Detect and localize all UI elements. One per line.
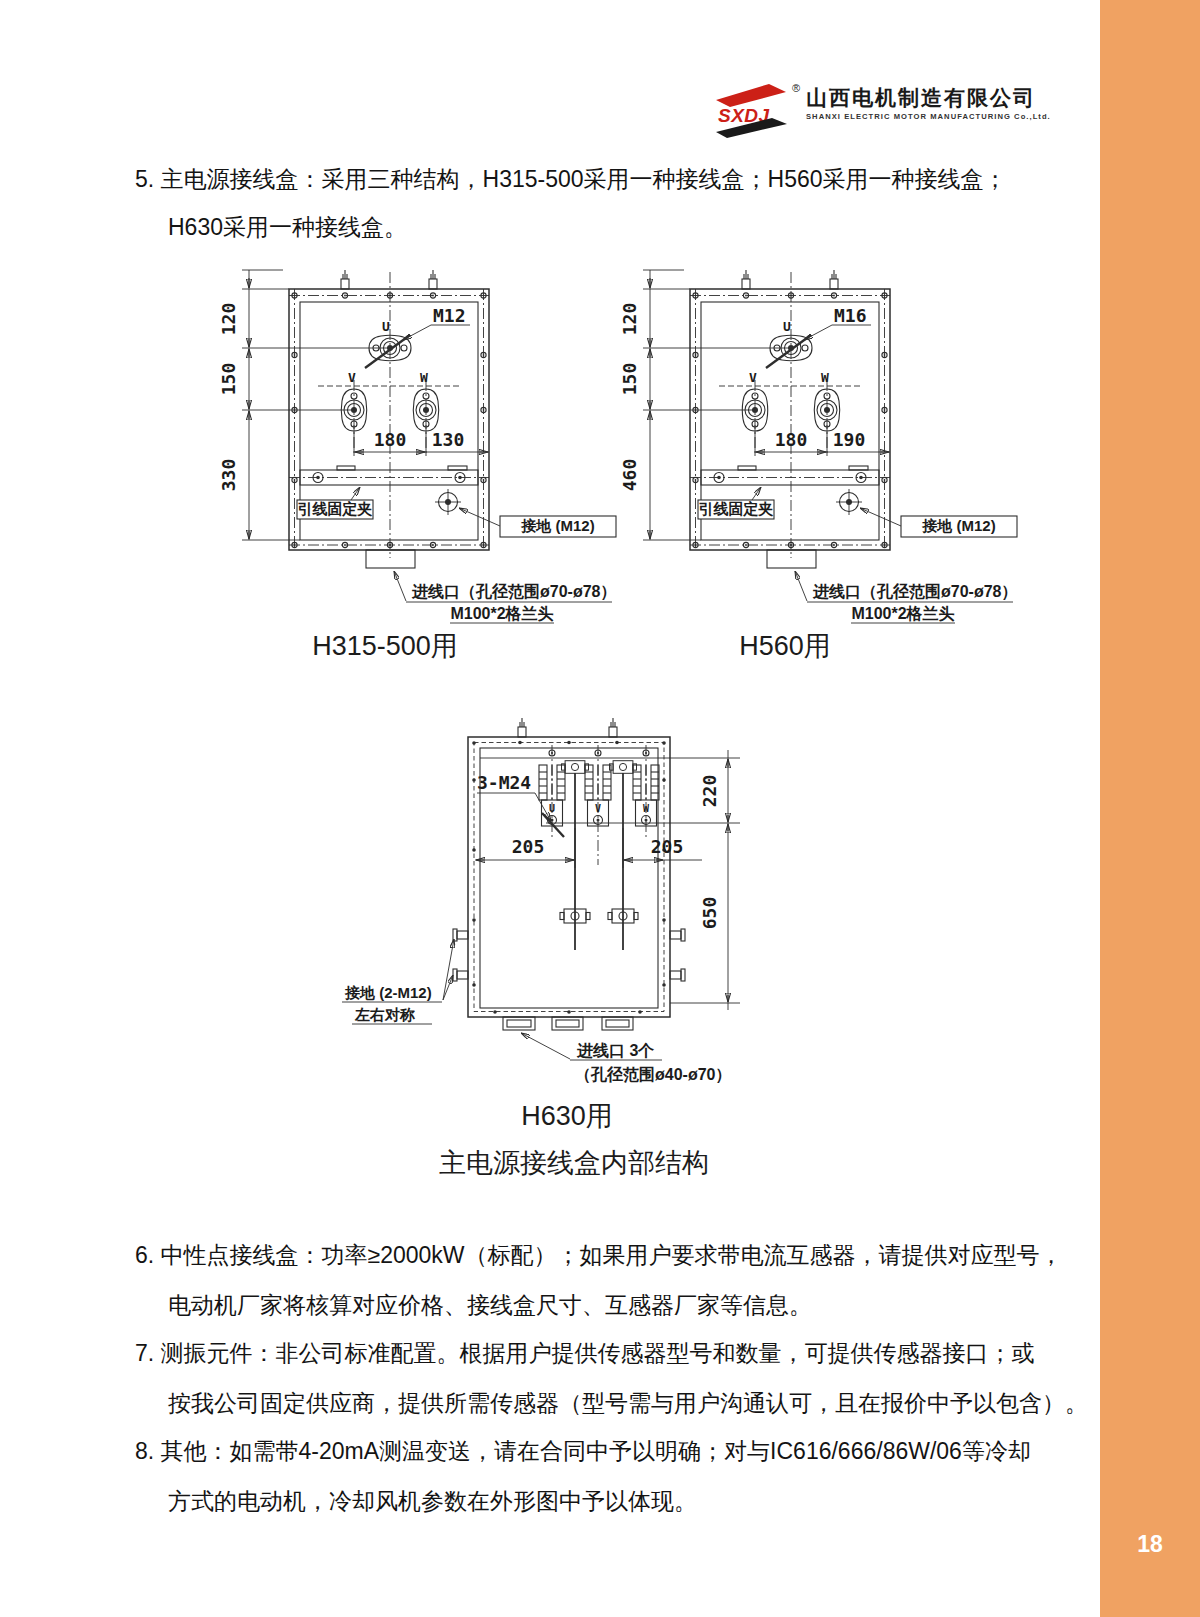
dim-180: 180 [775,429,808,450]
caption-h630: H630用 [521,1101,613,1131]
ground-label-1: 接地 (2-M12) [344,984,432,1001]
cover-screw [742,270,750,289]
item7-line1: 7. 测振元件：非公司标准配置。根据用户提供传感器型号和数量，可提供传感器接口；… [135,1342,1035,1365]
thread-label: M16 [834,305,867,326]
ground-stud [453,969,468,981]
item8-line2: 方式的电动机，冷却风机参数在外形图中予以体现。 [168,1490,697,1513]
dim-150: 150 [218,363,239,396]
item6-line2: 电动机厂家将核算对应价格、接线盒尺寸、互感器厂家等信息。 [168,1294,812,1317]
cover-screw [830,270,838,289]
item5-line1: 5. 主电源接线盒：采用三种结构，H315-500采用一种接线盒；H560采用一… [135,168,1007,191]
dim-120: 120 [619,303,640,336]
caption-h315-500: H315-500用 [312,631,458,661]
ground-stud [453,929,468,941]
dim-205-right: 205 [651,836,684,857]
dim-150: 150 [619,363,640,396]
cover-screw [429,270,437,289]
label-u: U [783,319,791,334]
document-page: 18 SXDJ ® 山西电机制造有限公司 SHANXI ELECTRIC MOT… [0,0,1200,1617]
inlet-label-2: （孔径范围ø40-ø70） [575,1066,731,1084]
item5-line2: H630采用一种接线盒。 [168,216,407,239]
rod-clamp [562,761,589,774]
ground-label-2: 左右对称 [354,1006,415,1023]
ground-label: 接地 (M12) [520,517,594,534]
diagram-h630: U V W 3-M24 205 205 [342,718,740,1178]
company-logo-icon: SXDJ [714,80,790,138]
item6-line1: 6. 中性点接线盒：功率≥2000kW（标配）；如果用户要求带电流互感器，请提供… [135,1244,1063,1267]
inlet-label-2: M100*2格兰头 [450,605,553,622]
rod-clamp [610,761,637,774]
company-name-cn: 山西电机制造有限公司 [806,84,1036,112]
cover-screw [341,270,349,289]
dim-120: 120 [218,303,239,336]
dim-205-left: 205 [512,836,545,857]
dim-180: 180 [374,429,407,450]
junction-box-drawings: 120 150 330 U V W M12 [150,240,1050,1200]
page-number: 18 [1100,1531,1200,1558]
dim-190: 190 [833,429,866,450]
ground-stud [670,929,685,941]
registered-trademark-icon: ® [792,82,800,94]
label-u: U [382,319,390,334]
item8-line1: 8. 其他：如需带4-20mA测温变送，请在合同中予以明确；对与IC616/66… [135,1440,1031,1463]
label-v: V [749,370,757,385]
company-name-en: SHANXI ELECTRIC MOTOR MANUFACTURING Co.,… [806,112,1051,121]
label-v: V [595,803,601,814]
ground-label: 接地 (M12) [921,517,995,534]
cover-screw [518,718,526,737]
label-u: U [549,803,555,814]
dim-220: 220 [699,775,720,808]
cover-screw [609,718,617,737]
page-edge-band [1100,0,1200,1617]
dim-130: 130 [432,429,465,450]
label-v: V [348,370,356,385]
clamp-label: 引线固定夹 [298,500,373,517]
item7-line2: 按我公司固定供应商，提供所需传感器（型号需与用户沟通认可，且在报价中予以包含）。 [168,1392,1088,1415]
dim-460: 460 [619,459,640,492]
inlet-label-1: 进线口 3个 [576,1042,654,1059]
dim-330: 330 [218,459,239,492]
thread-label: 3-M24 [477,772,531,793]
clamp-label: 引线固定夹 [699,500,774,517]
label-w: W [420,370,428,385]
label-w: W [643,803,650,814]
ground-stud [670,969,685,981]
inlet-label-1: 进线口（孔径范围ø70-ø78） [411,583,616,601]
diagram-h560: 120 150 460 U V W M16 [619,270,1017,661]
figure-title: 主电源接线盒内部结构 [439,1148,709,1178]
inlet-label-1: 进线口（孔径范围ø70-ø78） [812,583,1017,601]
thread-label: M12 [433,305,466,326]
inlet-label-2: M100*2格兰头 [851,605,954,622]
caption-h560: H560用 [739,631,831,661]
dim-650: 650 [699,897,720,930]
diagram-h315-500: 120 150 330 U V W M12 [218,270,616,661]
label-w: W [821,370,829,385]
